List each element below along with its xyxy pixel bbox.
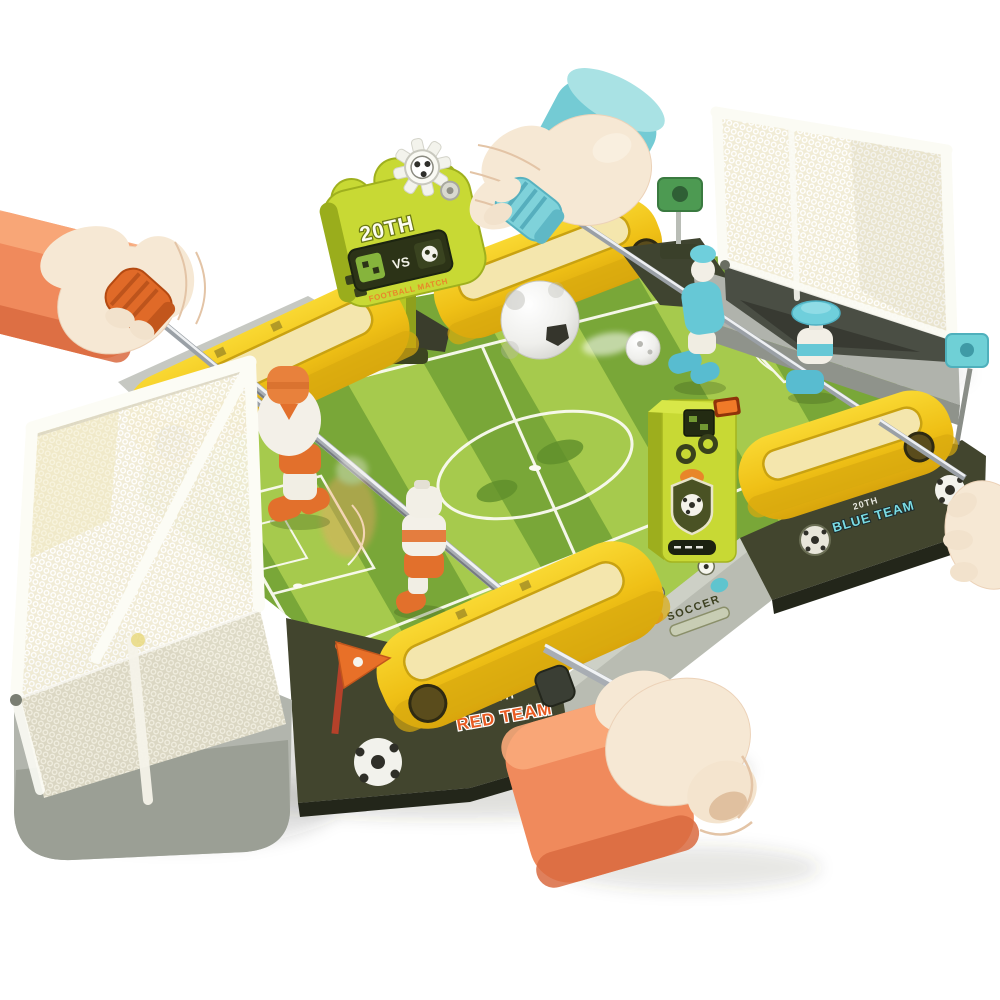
scoreboard-sign: 20TH VS FOOTBALL MATCH: [308, 130, 490, 312]
soccer-ball: [501, 281, 579, 359]
player-cap: [690, 245, 716, 263]
scorer-tower: [648, 396, 741, 562]
left-goal: [10, 362, 292, 860]
ball-roundel-icon: [800, 525, 830, 555]
scene-svg: 20TH VS FOOTBALL MATCH: [0, 0, 1000, 1000]
product-photo: 20TH VS FOOTBALL MATCH: [0, 0, 1000, 1000]
score-screen: [684, 410, 714, 436]
hand-left: [0, 204, 205, 373]
penalty-spot-left: [293, 584, 303, 589]
center-spot: [529, 465, 541, 471]
soccer-ball-decal-icon: [354, 738, 402, 786]
